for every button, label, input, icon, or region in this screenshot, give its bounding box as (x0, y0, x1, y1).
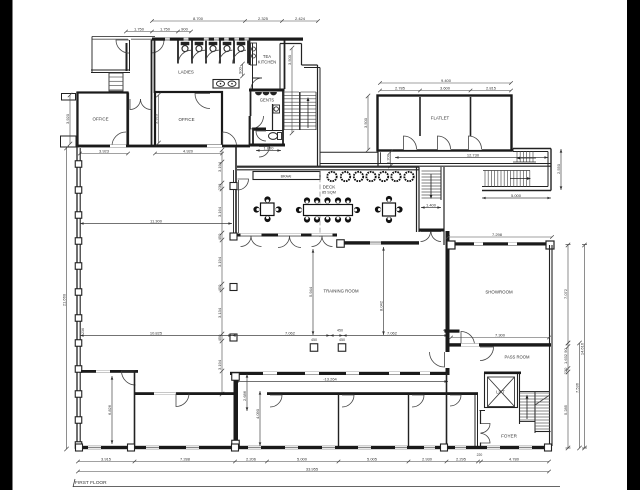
svg-text:12.730: 12.730 (467, 152, 480, 157)
svg-text:3.920: 3.920 (153, 113, 158, 124)
svg-text:1.750: 1.750 (134, 26, 145, 31)
svg-text:2.815: 2.815 (486, 85, 497, 90)
svg-text:7.062: 7.062 (285, 330, 296, 335)
svg-text:LIFT: LIFT (496, 390, 505, 395)
svg-text:8.700: 8.700 (193, 16, 204, 21)
svg-text:450: 450 (337, 329, 343, 333)
svg-text:3.923: 3.923 (99, 148, 110, 153)
svg-text:11.300: 11.300 (150, 218, 163, 223)
svg-text:FIRST FLOOR: FIRST FLOOR (75, 480, 107, 486)
svg-text:5.944: 5.944 (308, 286, 313, 297)
svg-text:9.400: 9.400 (441, 78, 452, 83)
svg-text:5.000: 5.000 (297, 456, 308, 461)
svg-text:1.400: 1.400 (426, 202, 437, 207)
svg-text:5.285: 5.285 (563, 404, 568, 415)
svg-text:7.072: 7.072 (563, 288, 568, 299)
svg-text:3.600: 3.600 (440, 85, 451, 90)
svg-text:900: 900 (181, 26, 188, 31)
svg-text:2.424: 2.424 (295, 16, 306, 21)
svg-text:BRAAI: BRAAI (281, 174, 292, 178)
svg-text:TRAINING ROOM: TRAINING ROOM (323, 289, 359, 294)
svg-text:90: 90 (563, 348, 568, 353)
svg-text:DECK: DECK (323, 185, 337, 190)
svg-text:2.206: 2.206 (246, 456, 257, 461)
svg-text:1.750: 1.750 (160, 26, 171, 31)
svg-text:LADIES: LADIES (178, 70, 194, 75)
svg-text:6.826: 6.826 (107, 404, 112, 415)
svg-text:-13.264: -13.264 (323, 376, 337, 381)
svg-text:GENTS: GENTS (260, 98, 275, 103)
svg-text:7.298: 7.298 (492, 232, 503, 237)
svg-text:FLATLET: FLATLET (431, 116, 450, 121)
svg-text:1.632: 1.632 (563, 353, 568, 364)
svg-text:450: 450 (311, 338, 317, 342)
svg-text:450: 450 (339, 338, 345, 342)
svg-text:7.300: 7.300 (495, 332, 506, 337)
svg-text:5.000: 5.000 (511, 193, 522, 198)
svg-text:21.660: 21.660 (61, 293, 66, 306)
svg-text:TEA: TEA (263, 54, 271, 59)
svg-text:450: 450 (217, 334, 222, 341)
svg-text:33.955: 33.955 (306, 466, 319, 471)
svg-text:1.200: 1.200 (385, 153, 390, 164)
svg-text:3.194: 3.194 (217, 256, 222, 267)
svg-text:PASS ROOM: PASS ROOM (504, 355, 530, 360)
svg-text:3.134: 3.134 (217, 307, 222, 318)
svg-text:3.164: 3.164 (217, 206, 222, 217)
svg-text:3.500: 3.500 (363, 117, 368, 128)
svg-text:7.288: 7.288 (180, 456, 191, 461)
svg-text:2.325: 2.325 (258, 16, 269, 21)
svg-text:14.616: 14.616 (579, 342, 584, 355)
svg-text:FOYER: FOYER (501, 434, 518, 439)
svg-text:KITCHEN: KITCHEN (258, 60, 276, 65)
svg-text:2.785: 2.785 (395, 85, 406, 90)
svg-text:2.930: 2.930 (422, 456, 433, 461)
svg-text:220: 220 (563, 367, 568, 374)
svg-text:85 SQM: 85 SQM (322, 191, 336, 195)
svg-text:3.915: 3.915 (101, 456, 112, 461)
svg-text:220: 220 (477, 453, 483, 457)
svg-text:3.920: 3.920 (65, 113, 70, 124)
svg-text:4.780: 4.780 (509, 456, 520, 461)
svg-text:OFFICE: OFFICE (92, 117, 108, 122)
svg-text:7.062: 7.062 (387, 330, 398, 335)
svg-text:8.042: 8.042 (378, 300, 383, 311)
svg-text:3.194: 3.194 (217, 359, 222, 370)
svg-text:SHOWROOM: SHOWROOM (485, 290, 513, 295)
svg-text:236: 236 (81, 328, 85, 334)
svg-text:5.005: 5.005 (367, 456, 378, 461)
svg-text:3.500: 3.500 (287, 54, 292, 65)
svg-text:2.295: 2.295 (456, 456, 467, 461)
svg-text:OFFICE: OFFICE (178, 117, 194, 122)
svg-text:7.536: 7.536 (574, 382, 579, 393)
svg-text:900: 900 (237, 66, 242, 73)
svg-text:2.686: 2.686 (242, 390, 247, 401)
svg-text:450: 450 (217, 233, 222, 240)
svg-text:450: 450 (217, 284, 222, 291)
svg-text:2.550: 2.550 (556, 163, 561, 174)
svg-text:236: 236 (217, 183, 222, 190)
svg-text:3.194: 3.194 (217, 161, 222, 172)
svg-text:1.800: 1.800 (263, 145, 274, 150)
svg-text:4.920: 4.920 (183, 148, 194, 153)
svg-text:4.090: 4.090 (255, 408, 260, 419)
svg-text:10.825: 10.825 (150, 330, 163, 335)
